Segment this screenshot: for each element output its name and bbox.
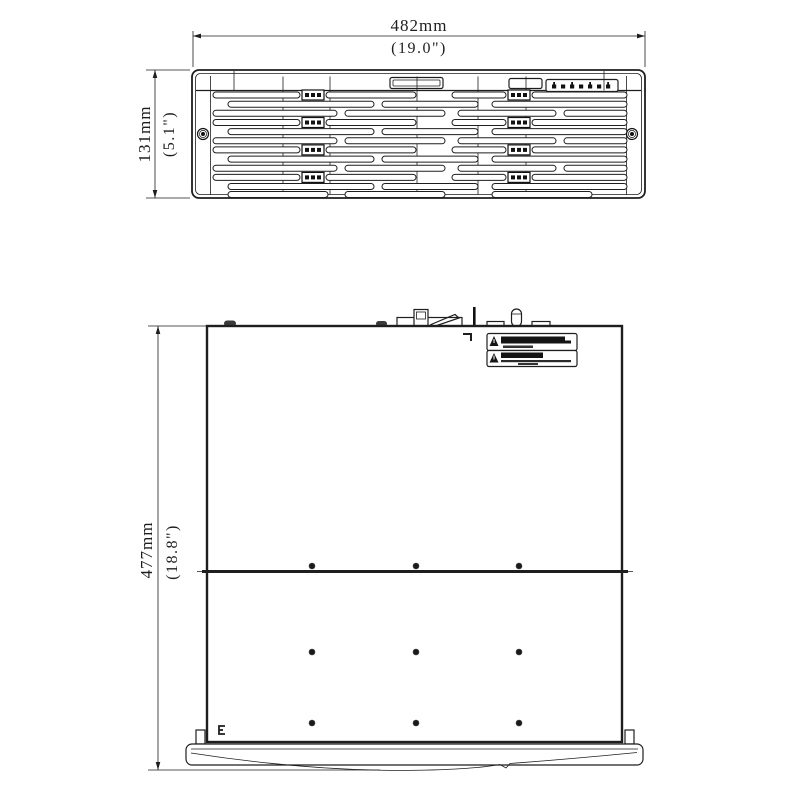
vent-slat xyxy=(345,138,445,144)
front-width-dimension: 482mm (19.0") xyxy=(193,16,645,67)
vent-slat xyxy=(532,92,627,98)
panel-screw-center xyxy=(201,132,205,136)
depth-label-inch: (18.8") xyxy=(164,524,181,580)
vent-slat xyxy=(382,156,478,162)
vent-slat xyxy=(532,174,627,180)
label-text-notch xyxy=(565,337,571,341)
label-text-bar xyxy=(501,360,571,362)
vent-slat xyxy=(345,165,445,171)
vent-slat xyxy=(213,165,337,171)
vent-slat xyxy=(326,92,416,98)
latch-dot xyxy=(523,121,527,125)
latch-dot xyxy=(317,148,321,152)
vent-slat xyxy=(532,147,627,153)
latch-dot xyxy=(523,175,527,179)
latch-dot xyxy=(311,121,315,125)
latch-dot xyxy=(517,148,521,152)
latch-dot xyxy=(305,148,309,152)
center-badge xyxy=(390,78,443,89)
screw-dot xyxy=(516,563,522,569)
led-indicator-icon xyxy=(579,85,583,89)
vent-slat xyxy=(492,129,627,135)
vent-slat xyxy=(564,138,627,144)
led-indicator-icon xyxy=(597,85,601,89)
vent-slat xyxy=(452,120,506,126)
exclamation-mark xyxy=(494,339,495,343)
vent-slat xyxy=(452,147,506,153)
label-text-bar xyxy=(503,346,533,349)
vent-slat xyxy=(213,147,300,153)
vent-slat xyxy=(345,110,445,116)
led-indicator-icon xyxy=(561,85,565,89)
screw-dot xyxy=(309,720,315,726)
led-indicator-icon xyxy=(553,82,555,85)
vent-slat xyxy=(213,174,300,180)
rear-connectors xyxy=(224,307,550,327)
label-text-bar xyxy=(518,363,538,365)
top-view: 477mm (18.8") xyxy=(137,307,643,771)
width-label-mm: 482mm xyxy=(391,16,448,35)
arrowhead-down xyxy=(156,762,161,770)
arrowhead-right xyxy=(637,34,645,39)
latch-dot xyxy=(317,93,321,97)
vent-slat xyxy=(228,192,328,198)
latch-dot xyxy=(305,175,309,179)
latch-dot xyxy=(311,175,315,179)
latch-dot xyxy=(305,93,309,97)
latch-dot xyxy=(511,175,515,179)
latch-dot xyxy=(523,93,527,97)
vent-slat xyxy=(228,184,374,190)
vent-slat xyxy=(458,165,556,171)
led-indicator-icon xyxy=(589,82,591,85)
vent-slat xyxy=(345,192,445,198)
vent-slat xyxy=(326,174,416,180)
led-indicator-icon xyxy=(552,85,556,89)
engineering-drawing-page: 482mm (19.0") 131mm (5.1") xyxy=(0,0,800,800)
latch-dot xyxy=(317,121,321,125)
vent-slat xyxy=(452,174,506,180)
vent-slat xyxy=(492,184,627,190)
width-label-inch: (19.0") xyxy=(391,40,447,57)
exclamation-mark xyxy=(494,356,495,360)
bezel-clip xyxy=(196,730,205,744)
vent-slat xyxy=(213,120,300,126)
power-socket-inner xyxy=(417,312,426,319)
bezel-clip xyxy=(625,730,634,744)
label-text-bar xyxy=(501,337,571,344)
vent-slat xyxy=(492,156,627,162)
depth-label-mm: 477mm xyxy=(137,522,156,579)
label-text-bar xyxy=(501,353,543,359)
latch-dot xyxy=(511,148,515,152)
warning-label xyxy=(487,334,577,367)
latch-dot xyxy=(317,175,321,179)
latch-dot xyxy=(311,93,315,97)
led-indicator-icon xyxy=(570,85,574,89)
vent-slat xyxy=(213,110,337,116)
vent-slat xyxy=(228,156,374,162)
vent-slat xyxy=(532,120,627,126)
latch-dot xyxy=(305,121,309,125)
vent-slat xyxy=(452,92,506,98)
latch-dot xyxy=(517,121,521,125)
vent-slat xyxy=(382,129,478,135)
screw-dot xyxy=(413,720,419,726)
vent-slat xyxy=(213,92,300,98)
screw-dot xyxy=(309,563,315,569)
right-badge xyxy=(509,79,542,89)
vent-slat xyxy=(382,101,478,107)
latch-dot xyxy=(311,148,315,152)
screw-dot xyxy=(413,563,419,569)
vent-slat xyxy=(564,110,627,116)
arrowhead-down xyxy=(153,190,158,198)
led-indicator-icon xyxy=(606,85,610,89)
led-indicator-icon xyxy=(607,82,609,85)
screw-dot xyxy=(516,720,522,726)
front-height-dimension: 131mm (5.1") xyxy=(135,70,190,198)
latch-dot xyxy=(511,121,515,125)
screw-dot xyxy=(516,649,522,655)
led-indicator-icon xyxy=(588,85,592,89)
vent-slat xyxy=(326,147,416,153)
vent-slat xyxy=(564,165,627,171)
pin-icon xyxy=(473,307,476,327)
vent-slat xyxy=(213,138,337,144)
vent-slat xyxy=(228,129,374,135)
vent-slat xyxy=(326,120,416,126)
screw-dot xyxy=(309,649,315,655)
vent-slat xyxy=(382,184,478,190)
latch-dot xyxy=(517,93,521,97)
height-label-mm: 131mm xyxy=(135,106,154,163)
arrowhead-up xyxy=(153,70,158,78)
drawing-canvas: 482mm (19.0") 131mm (5.1") xyxy=(0,0,800,800)
front-view: 482mm (19.0") 131mm (5.1") xyxy=(135,16,645,198)
latch-dot xyxy=(517,175,521,179)
led-indicator-icon xyxy=(571,82,573,85)
screw-dot xyxy=(413,649,419,655)
vent-slat xyxy=(458,110,556,116)
vent-slat xyxy=(458,138,556,144)
antenna-post-icon xyxy=(512,309,522,327)
arrowhead-left xyxy=(193,34,201,39)
top-view-outline xyxy=(207,326,622,742)
arrowhead-up xyxy=(156,326,161,334)
vent-slat xyxy=(228,101,374,107)
latch-dot xyxy=(511,93,515,97)
latch-dot xyxy=(523,148,527,152)
vent-slat xyxy=(492,101,627,107)
panel-screw-center xyxy=(630,132,634,136)
vent-slat xyxy=(492,192,592,198)
height-label-inch: (5.1") xyxy=(161,111,178,157)
